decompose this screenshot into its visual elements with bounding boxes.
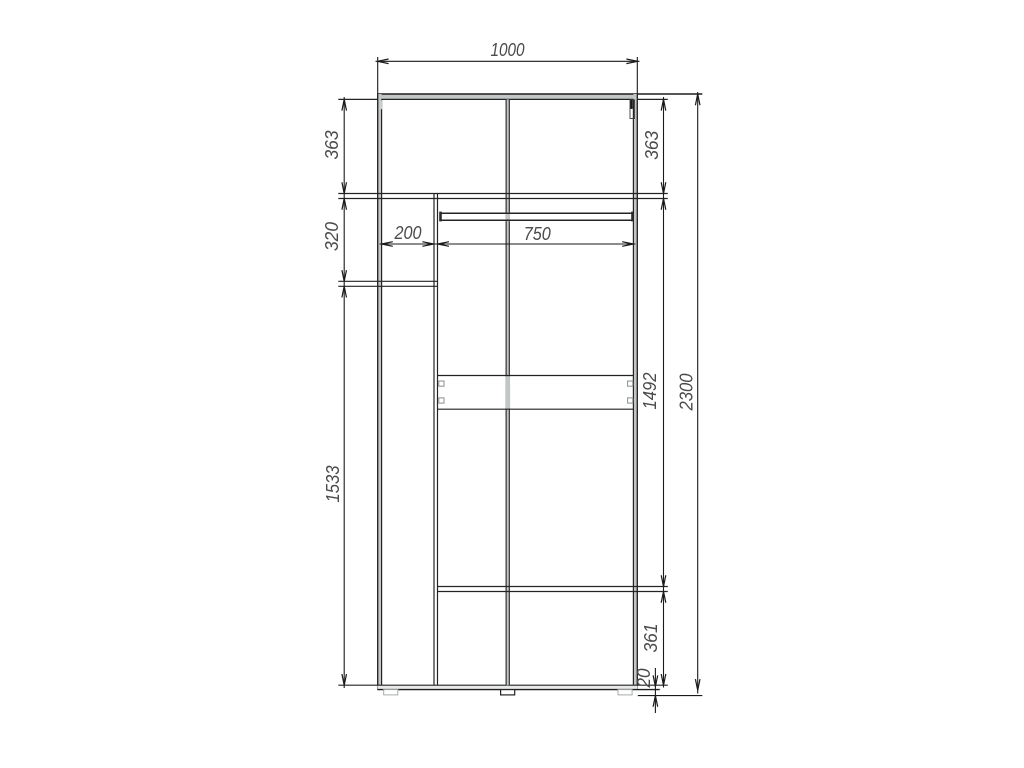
svg-text:361: 361 xyxy=(641,624,661,653)
svg-text:2300: 2300 xyxy=(677,374,697,412)
svg-text:1492: 1492 xyxy=(640,373,660,410)
svg-text:363: 363 xyxy=(642,131,662,160)
svg-text:1000: 1000 xyxy=(491,40,525,60)
svg-text:320: 320 xyxy=(322,222,342,251)
svg-text:1533: 1533 xyxy=(323,466,343,503)
svg-text:20: 20 xyxy=(634,669,654,689)
svg-text:750: 750 xyxy=(524,224,551,244)
svg-text:363: 363 xyxy=(322,131,342,160)
svg-text:200: 200 xyxy=(394,223,422,243)
